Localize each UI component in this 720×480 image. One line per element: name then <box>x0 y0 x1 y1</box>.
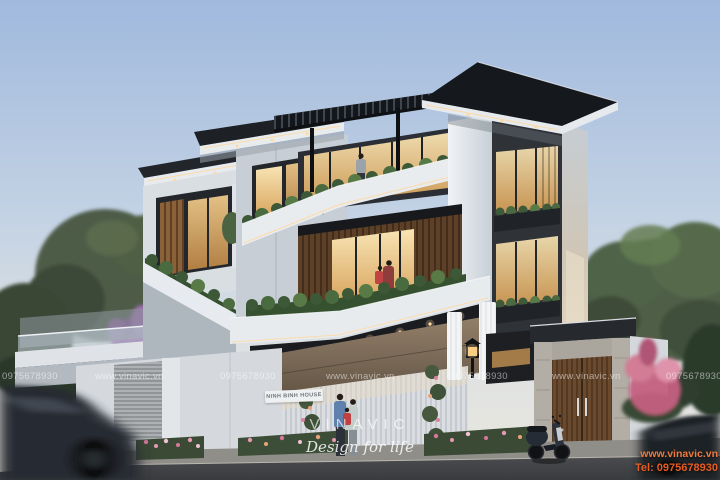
corner-contact: www.vinavic.vn Tel: 0975678930 <box>540 447 720 475</box>
gate-handle <box>585 398 587 416</box>
brand-tagline: Design for life <box>276 438 444 456</box>
contact-phone: Tel: 0975678930 <box>540 461 718 475</box>
brand-watermark: VINAVIC <box>276 416 444 433</box>
house-name-sign: NINH BINH HOUSE <box>265 389 323 403</box>
architectural-rendering: 0975678930 www.vinavic.vn 0975678930 www… <box>0 0 720 480</box>
gate-handle <box>577 398 579 416</box>
gate-pillar-right <box>612 338 630 450</box>
scene-canvas <box>0 0 720 480</box>
contact-website: www.vinavic.vn <box>540 447 718 461</box>
fence-pillar <box>162 358 180 444</box>
carport <box>486 330 536 384</box>
